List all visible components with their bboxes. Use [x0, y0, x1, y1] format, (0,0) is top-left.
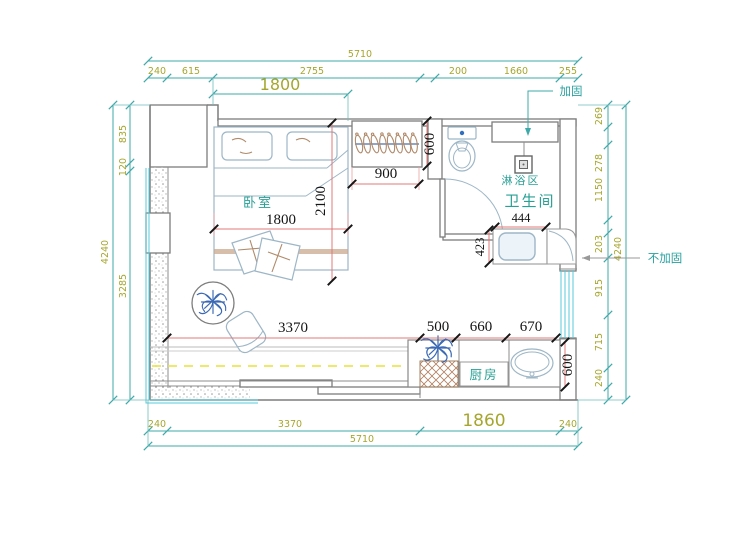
dim-basin-depth: 423 [473, 238, 487, 257]
dim-bottom-seg-3: 1860 [462, 411, 505, 431]
dim-top-seg-2: 615 [182, 66, 200, 77]
dim-top-seg-4: 200 [449, 66, 467, 77]
wall-bathroom-lower [443, 234, 495, 240]
dim-bottom-seg-2: 3370 [278, 419, 302, 430]
dim-left-overall: 4240 [100, 240, 111, 264]
side-cabinet [547, 229, 576, 264]
dimensions-left: 4240 835 120 3285 [100, 101, 150, 404]
shower-area-label: 淋浴区 [502, 174, 541, 187]
dim-top-seg-3: 2755 [300, 66, 324, 77]
floorplan-drawing: 卧室 [0, 0, 740, 555]
structural-block [150, 105, 207, 167]
dim-living-span: 3370 [278, 320, 308, 336]
dim-top-overall: 5710 [348, 49, 372, 60]
wall-bottom-insulation [151, 386, 250, 399]
flush-button [460, 131, 464, 135]
dim-right-seg-4: 203 [594, 235, 605, 253]
dim-kitchen-seg-1: 500 [427, 319, 450, 335]
dim-right-seg-3: 1150 [594, 178, 605, 202]
dim-top-seg-1: 240 [148, 66, 166, 77]
dim-left-seg-3: 3285 [118, 274, 129, 298]
dim-closet-width: 900 [375, 166, 398, 182]
wall-left-insulation [151, 167, 168, 389]
door-leaf [440, 179, 445, 237]
hob-lattice [420, 361, 458, 387]
bedroom-label: 卧室 [243, 195, 273, 211]
floorplan-canvas: 卧室 [0, 0, 740, 555]
dim-left-seg-2: 120 [118, 158, 129, 176]
dim-bed-width: 1800 [266, 212, 296, 228]
wall-top-step [207, 105, 218, 121]
floor-drain [515, 142, 532, 173]
dim-right-seg-6: 715 [594, 333, 605, 351]
dim-bed-length: 2100 [313, 186, 329, 216]
living-area [192, 282, 268, 355]
pillow-left [222, 132, 272, 160]
dim-closet-depth: 600 [422, 133, 438, 156]
dim-kitchen-depth: 600 [560, 354, 576, 377]
reinforced-label: 加固 [560, 84, 583, 98]
dim-right-seg-7: 240 [594, 369, 605, 387]
washbasin-cabinet [493, 229, 576, 264]
dim-right-overall: 4240 [613, 237, 624, 261]
kitchen-sink [511, 349, 553, 378]
right-window [559, 269, 577, 339]
dim-right-seg-2: 278 [594, 154, 605, 172]
basin [499, 233, 535, 260]
dim-left-seg-1: 835 [118, 125, 129, 143]
not-reinforced-label: 不加固 [648, 251, 683, 265]
dim-bottom-seg-1: 240 [148, 419, 166, 430]
shower-ledge [492, 122, 558, 142]
pillow-right [287, 132, 337, 160]
closet [352, 121, 422, 167]
throw-pillow-2 [255, 238, 300, 280]
sliding-door-panel-2 [318, 387, 420, 394]
dimensions-top: 5710 240 615 2755 200 1660 255 1800 [144, 49, 582, 121]
not-reinforced-arrow [582, 255, 590, 261]
wall-left-pier [146, 213, 170, 253]
dim-right-seg-5: 915 [594, 279, 605, 297]
dimensions-bottom: 240 3370 1860 240 5710 [144, 400, 582, 450]
bathroom-label: 卫生间 [504, 192, 555, 210]
kitchen: 厨房 [408, 336, 560, 387]
dim-kitchen-seg-3: 670 [520, 319, 543, 335]
dimensions-right: 269 278 1150 203 915 715 240 4240 [578, 101, 630, 404]
dim-top-seg-5: 1660 [504, 66, 528, 77]
dim-bottom-overall: 5710 [350, 434, 374, 445]
dim-top-opening: 1800 [260, 75, 301, 94]
dim-bottom-seg-4: 240 [559, 419, 577, 430]
kitchen-label: 厨房 [469, 367, 498, 382]
dim-kitchen-seg-2: 660 [470, 319, 493, 335]
dim-basin-width: 444 [512, 211, 532, 225]
toilet [448, 127, 476, 171]
dim-right-seg-1: 269 [594, 107, 605, 125]
dim-top-seg-6: 255 [559, 66, 577, 77]
bathroom: 淋浴区 卫生间 [440, 122, 576, 264]
